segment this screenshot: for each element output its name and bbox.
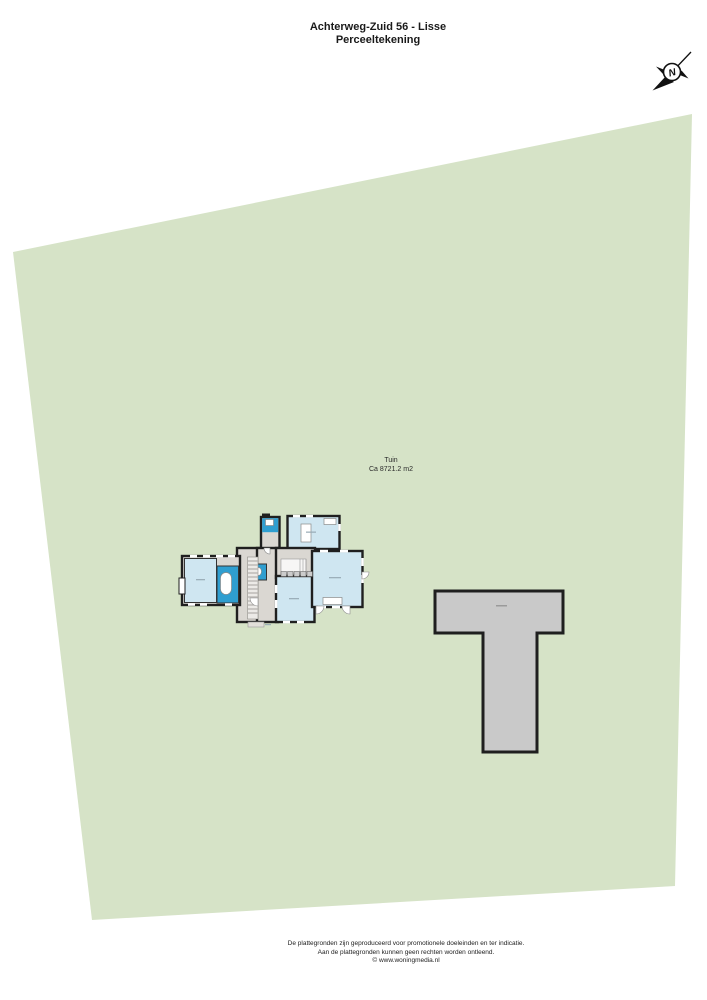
- bay-window: [179, 578, 185, 594]
- garden-label: Tuin Ca 8721.2 m2: [291, 456, 491, 474]
- perceeltekening-page: N Achterweg-Zuid 56 - Lisse Perceelteken…: [0, 0, 707, 1000]
- compass-icon: N: [653, 52, 692, 91]
- chimney: [262, 514, 270, 519]
- footer-disclaimer: De plattegronden zijn geproduceerd voor …: [105, 940, 707, 966]
- document-title: Achterweg-Zuid 56 - Lisse: [49, 21, 707, 34]
- outbuilding-label: [496, 605, 507, 607]
- document-subtitle: Perceeltekening: [49, 34, 707, 47]
- bathtub: [221, 573, 232, 595]
- counter: [324, 519, 336, 525]
- footer-line-2: Aan de plattegronden kunnen geen rechten…: [105, 949, 707, 958]
- footer-line-1: De plattegronden zijn geproduceerd voor …: [105, 940, 707, 949]
- shower-tray: [266, 520, 274, 526]
- staircase: [248, 557, 259, 619]
- footer-line-3: © www.woningmedia.nl: [105, 957, 707, 966]
- site-plan-drawing: N: [0, 0, 707, 1000]
- kitchen-island: [301, 524, 311, 542]
- window-seat: [323, 598, 342, 605]
- garden-name: Tuin: [291, 456, 491, 465]
- entry-step: [248, 622, 264, 627]
- garden-area-value: Ca 8721.2 m2: [291, 465, 491, 474]
- room-left: [185, 559, 217, 603]
- title-block: Achterweg-Zuid 56 - Lisse Perceeltekenin…: [49, 21, 707, 47]
- garden-area: [13, 114, 692, 920]
- closet-row: [281, 572, 313, 577]
